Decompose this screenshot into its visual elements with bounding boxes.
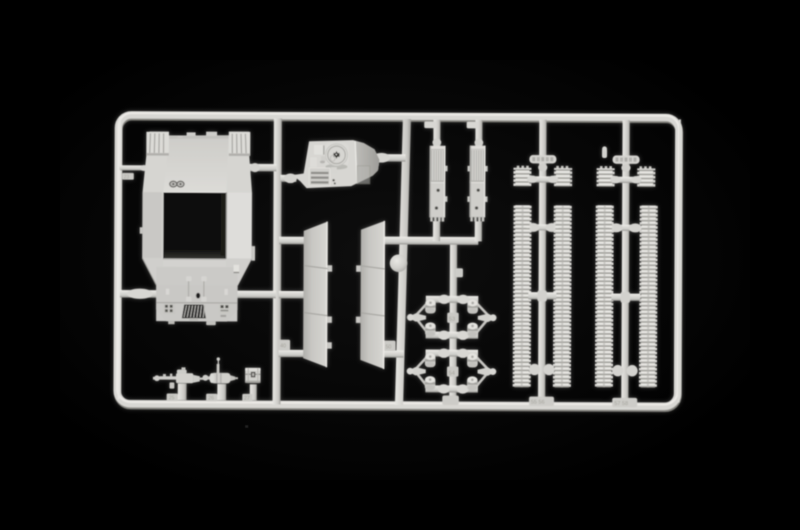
svg-text:55 56: 55 56 [531, 400, 545, 406]
svg-text:23: 23 [124, 174, 130, 180]
svg-text:50: 50 [386, 344, 392, 350]
svg-text:40: 40 [280, 344, 286, 350]
svg-text:27: 27 [244, 396, 250, 402]
svg-text:53: 53 [449, 317, 455, 323]
svg-text:57 58: 57 58 [614, 401, 628, 407]
svg-text:54: 54 [448, 371, 455, 377]
svg-text:26: 26 [208, 396, 214, 402]
svg-text:25: 25 [169, 395, 175, 401]
